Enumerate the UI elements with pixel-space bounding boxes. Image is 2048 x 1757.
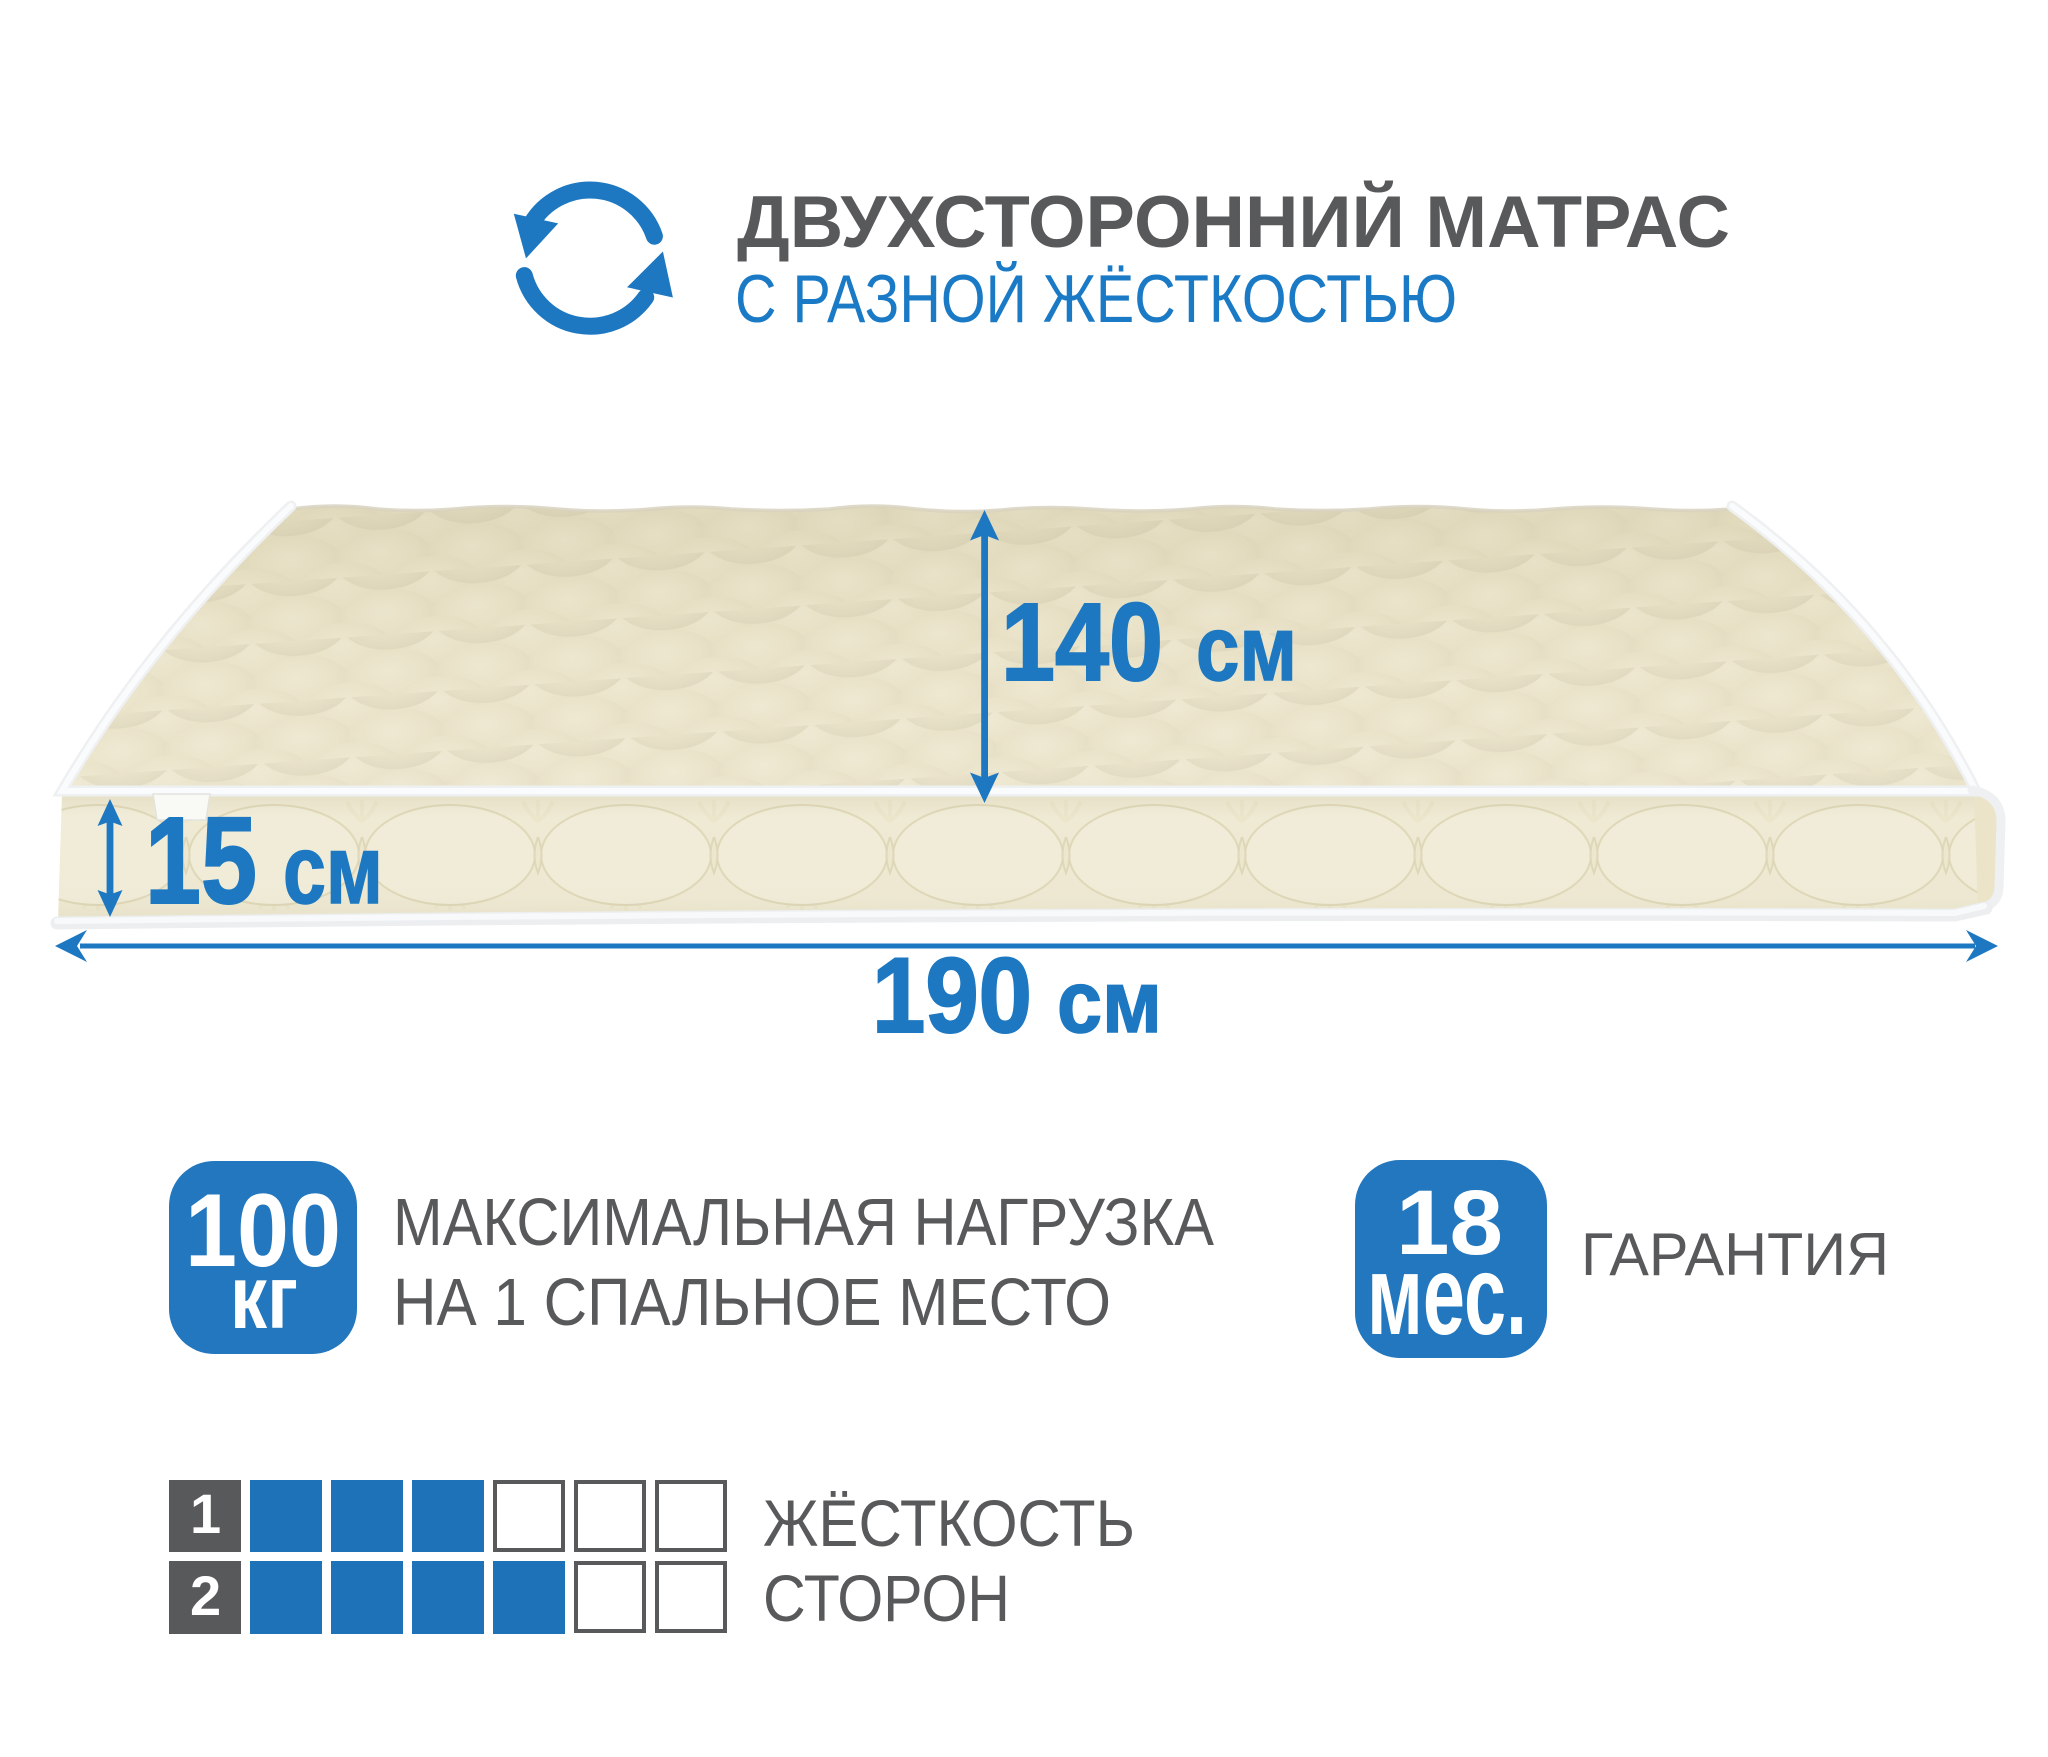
svg-text:СТОРОН: СТОРОН [763, 1561, 1010, 1635]
svg-text:1: 1 [190, 1482, 221, 1545]
svg-text:15: 15 [145, 793, 257, 930]
svg-text:2: 2 [190, 1564, 221, 1627]
svg-text:140: 140 [1001, 581, 1163, 704]
svg-text:НА 1 СПАЛЬНОЕ МЕСТО: НА 1 СПАЛЬНОЕ МЕСТО [393, 1265, 1111, 1340]
svg-text:кг: кг [230, 1248, 298, 1348]
svg-text:см: см [283, 815, 383, 924]
svg-text:ДВУХСТОРОННИЙ МАТРАС: ДВУХСТОРОННИЙ МАТРАС [737, 181, 1730, 263]
svg-text:МАКСИМАЛЬНАЯ НАГРУЗКА: МАКСИМАЛЬНАЯ НАГРУЗКА [393, 1185, 1214, 1260]
svg-text:190: 190 [872, 935, 1032, 1055]
svg-text:см: см [1057, 952, 1162, 1051]
svg-text:см: см [1196, 598, 1297, 700]
svg-text:ЖЁСТКОСТЬ: ЖЁСТКОСТЬ [763, 1486, 1135, 1560]
svg-text:ГАРАНТИЯ: ГАРАНТИЯ [1581, 1221, 1889, 1288]
svg-text:С РАЗНОЙ ЖЁСТКОСТЬЮ: С РАЗНОЙ ЖЁСТКОСТЬЮ [735, 260, 1457, 337]
svg-text:мес.: мес. [1367, 1232, 1527, 1358]
